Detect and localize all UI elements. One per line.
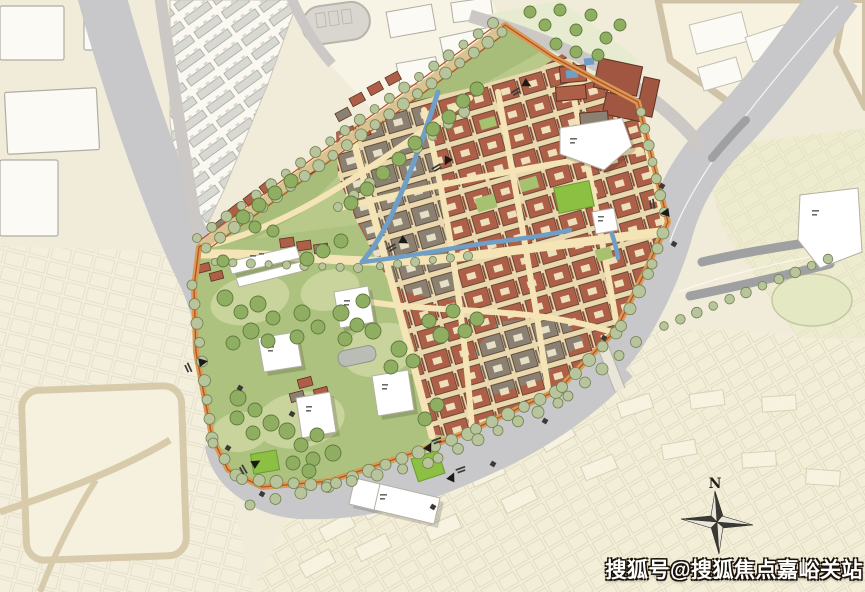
tree-icon bbox=[187, 280, 197, 290]
tree-icon bbox=[519, 401, 530, 412]
tree-icon bbox=[236, 210, 250, 224]
tree-icon bbox=[774, 274, 784, 284]
tree-icon bbox=[204, 413, 215, 424]
tree-icon bbox=[202, 395, 212, 405]
tree-icon bbox=[443, 50, 454, 61]
tree-icon bbox=[397, 98, 409, 110]
tree-icon bbox=[446, 304, 460, 318]
tree-icon bbox=[412, 446, 425, 459]
tree-icon bbox=[456, 94, 470, 108]
tree-icon bbox=[263, 415, 279, 431]
tree-icon bbox=[463, 251, 472, 260]
tree-icon bbox=[253, 474, 265, 486]
tree-icon bbox=[313, 160, 325, 172]
tree-icon bbox=[237, 201, 246, 210]
tree-icon bbox=[325, 445, 341, 461]
tree-icon bbox=[570, 368, 582, 380]
tree-icon bbox=[217, 255, 229, 267]
temple-pond-2 bbox=[584, 58, 595, 66]
tree-icon bbox=[429, 61, 439, 71]
tree-icon bbox=[193, 234, 202, 243]
tree-icon bbox=[524, 6, 536, 18]
tree-icon bbox=[302, 464, 316, 478]
tree-icon bbox=[392, 152, 406, 166]
tree-icon bbox=[446, 254, 454, 262]
tree-icon bbox=[321, 482, 331, 492]
tree-icon bbox=[532, 406, 544, 418]
tree-icon bbox=[229, 259, 237, 267]
tree-icon bbox=[563, 391, 573, 401]
tree-icon bbox=[398, 464, 408, 474]
tree-icon bbox=[807, 261, 816, 270]
tree-icon bbox=[455, 58, 465, 68]
tree-icon bbox=[470, 312, 484, 326]
tree-icon bbox=[652, 243, 663, 254]
tree-icon bbox=[493, 426, 503, 436]
tree-icon bbox=[396, 453, 408, 465]
tree-icon bbox=[208, 438, 218, 448]
tree-icon bbox=[286, 456, 300, 470]
tree-icon bbox=[300, 252, 314, 266]
tree-icon bbox=[426, 78, 437, 89]
tree-icon bbox=[370, 120, 380, 130]
tree-icon bbox=[261, 334, 275, 348]
tree-icon bbox=[412, 89, 422, 99]
tree-icon bbox=[458, 324, 472, 338]
tree-icon bbox=[592, 49, 604, 61]
tree-icon bbox=[657, 227, 669, 239]
tree-icon bbox=[384, 109, 395, 120]
tree-icon bbox=[459, 40, 468, 49]
tree-icon bbox=[660, 322, 669, 331]
tree-icon bbox=[570, 24, 582, 36]
tree-icon bbox=[189, 299, 200, 310]
tree-icon bbox=[245, 500, 255, 510]
tree-icon bbox=[539, 19, 551, 31]
tree-icon bbox=[354, 114, 365, 125]
tree-icon bbox=[270, 494, 281, 505]
tree-icon bbox=[267, 225, 279, 237]
tree-icon bbox=[394, 260, 402, 268]
tree-icon bbox=[288, 478, 299, 489]
pond bbox=[772, 274, 852, 326]
tree-icon bbox=[406, 354, 420, 368]
tree-icon bbox=[340, 126, 350, 136]
tree-icon bbox=[191, 317, 203, 329]
tree-icon bbox=[311, 320, 325, 334]
tree-icon bbox=[472, 434, 484, 446]
tree-icon bbox=[430, 398, 444, 412]
tree-icon bbox=[365, 323, 381, 339]
tree-icon bbox=[221, 211, 232, 222]
tree-icon bbox=[676, 315, 686, 325]
tree-icon bbox=[497, 27, 507, 37]
tree-icon bbox=[429, 256, 436, 263]
tree-icon bbox=[823, 254, 833, 264]
tree-icon bbox=[614, 351, 624, 361]
tree-icon bbox=[418, 412, 432, 426]
tree-icon bbox=[502, 408, 515, 421]
tree-icon bbox=[243, 323, 259, 339]
tree-icon bbox=[597, 341, 608, 352]
tree-icon bbox=[360, 182, 374, 196]
tree-icon bbox=[471, 424, 482, 435]
tree-icon bbox=[614, 19, 626, 31]
tree-icon bbox=[534, 393, 546, 405]
tree-icon bbox=[342, 140, 353, 151]
tree-icon bbox=[333, 305, 349, 321]
tree-icon bbox=[473, 29, 483, 39]
tree-icon bbox=[319, 263, 326, 270]
tree-icon bbox=[219, 454, 230, 465]
tree-icon bbox=[228, 221, 240, 233]
tree-icon bbox=[709, 302, 718, 311]
tree-icon bbox=[370, 105, 379, 114]
tree-icon bbox=[415, 72, 424, 81]
tree-icon bbox=[284, 174, 298, 188]
tree-icon bbox=[195, 337, 205, 347]
tree-icon bbox=[234, 305, 248, 319]
tree-icon bbox=[334, 234, 348, 248]
tree-icon bbox=[426, 122, 440, 136]
tree-icon bbox=[279, 423, 295, 439]
tree-icon bbox=[550, 38, 562, 50]
tree-icon bbox=[207, 222, 217, 232]
tree-icon bbox=[338, 332, 352, 346]
tree-icon bbox=[488, 18, 499, 29]
tree-icon bbox=[643, 269, 654, 280]
tree-icon bbox=[356, 294, 370, 308]
tree-icon bbox=[331, 478, 342, 489]
tree-icon bbox=[237, 474, 248, 485]
tree-icon bbox=[350, 318, 364, 332]
watermark-text: 搜狐号@搜狐焦点嘉峪关站 bbox=[606, 554, 863, 584]
tree-icon bbox=[631, 337, 642, 348]
tree-icon bbox=[513, 416, 524, 427]
tree-icon bbox=[583, 354, 596, 367]
tree-icon bbox=[326, 137, 335, 146]
tree-icon bbox=[433, 453, 443, 463]
tree-icon bbox=[294, 305, 310, 321]
tree-icon bbox=[741, 287, 752, 298]
tree-icon bbox=[355, 129, 367, 141]
tree-icon bbox=[422, 314, 436, 328]
tree-icon bbox=[725, 294, 735, 304]
tree-icon bbox=[585, 9, 597, 21]
tree-icon bbox=[217, 290, 233, 306]
tree-icon bbox=[295, 487, 307, 499]
tree-icon bbox=[249, 221, 261, 233]
master-plan-map: N 搜狐号@搜狐焦点嘉峪关站 bbox=[0, 0, 865, 592]
tree-icon bbox=[790, 267, 801, 278]
tree-icon bbox=[391, 341, 407, 357]
tree-icon bbox=[230, 411, 244, 425]
tree-icon bbox=[344, 196, 358, 210]
tree-icon bbox=[305, 479, 317, 491]
tree-icon bbox=[199, 375, 211, 387]
tree-icon bbox=[353, 263, 362, 272]
tree-icon bbox=[408, 136, 422, 150]
tree-icon bbox=[643, 140, 654, 151]
tree-icon bbox=[624, 303, 636, 315]
tree-icon bbox=[230, 390, 246, 406]
tree-icon bbox=[290, 330, 304, 344]
tree-icon bbox=[423, 458, 434, 469]
tree-icon bbox=[655, 190, 666, 201]
tree-icon bbox=[692, 307, 703, 318]
tree-icon bbox=[442, 110, 456, 124]
tree-icon bbox=[411, 257, 420, 266]
tree-icon bbox=[648, 158, 657, 167]
tree-icon bbox=[453, 443, 464, 454]
tree-icon bbox=[651, 174, 661, 184]
tree-icon bbox=[266, 311, 280, 325]
tree-icon bbox=[250, 296, 266, 312]
tree-icon bbox=[637, 108, 646, 117]
tree-icon bbox=[557, 382, 568, 393]
tree-icon bbox=[580, 377, 591, 388]
tree-icon bbox=[399, 82, 410, 93]
tree-icon bbox=[616, 321, 627, 332]
tree-icon bbox=[640, 124, 650, 134]
tree-icon bbox=[554, 4, 566, 16]
tree-icon bbox=[470, 82, 484, 96]
tree-icon bbox=[248, 403, 262, 417]
tree-icon bbox=[299, 171, 310, 182]
north-label: N bbox=[709, 476, 722, 492]
tree-icon bbox=[384, 360, 398, 374]
tree-icon bbox=[328, 150, 338, 160]
tree-icon bbox=[270, 475, 283, 488]
white-building bbox=[372, 370, 418, 420]
tree-icon bbox=[226, 336, 240, 350]
tree-icon bbox=[553, 398, 563, 408]
tree-icon bbox=[296, 158, 306, 168]
tree-icon bbox=[268, 186, 282, 200]
tree-icon bbox=[346, 476, 357, 487]
tree-icon bbox=[440, 67, 452, 79]
tree-icon bbox=[371, 469, 383, 481]
tree-icon bbox=[246, 259, 255, 268]
tree-icon bbox=[282, 261, 290, 269]
tree-icon bbox=[376, 166, 390, 180]
tree-icon bbox=[600, 32, 612, 44]
tree-icon bbox=[433, 327, 449, 343]
tree-icon bbox=[294, 438, 308, 452]
tree-icon bbox=[336, 263, 344, 271]
tree-icon bbox=[265, 261, 272, 268]
tree-icon bbox=[647, 259, 657, 269]
map-canvas: N bbox=[0, 0, 865, 592]
tree-icon bbox=[310, 147, 321, 158]
tree-icon bbox=[215, 232, 226, 243]
tree-icon bbox=[310, 428, 324, 442]
tree-icon bbox=[633, 285, 646, 298]
tree-icon bbox=[468, 47, 479, 58]
white-building bbox=[592, 208, 618, 234]
tree-icon bbox=[758, 282, 767, 291]
tree-icon bbox=[376, 262, 383, 269]
tree-icon bbox=[252, 198, 266, 212]
tree-icon bbox=[246, 426, 260, 440]
tree-icon bbox=[570, 46, 582, 58]
tree-icon bbox=[482, 36, 494, 48]
tree-icon bbox=[334, 203, 343, 212]
tree-icon bbox=[596, 363, 608, 375]
tree-icon bbox=[201, 243, 211, 253]
tree-icon bbox=[380, 459, 391, 470]
tree-icon bbox=[384, 93, 394, 103]
tree-icon bbox=[316, 244, 330, 258]
